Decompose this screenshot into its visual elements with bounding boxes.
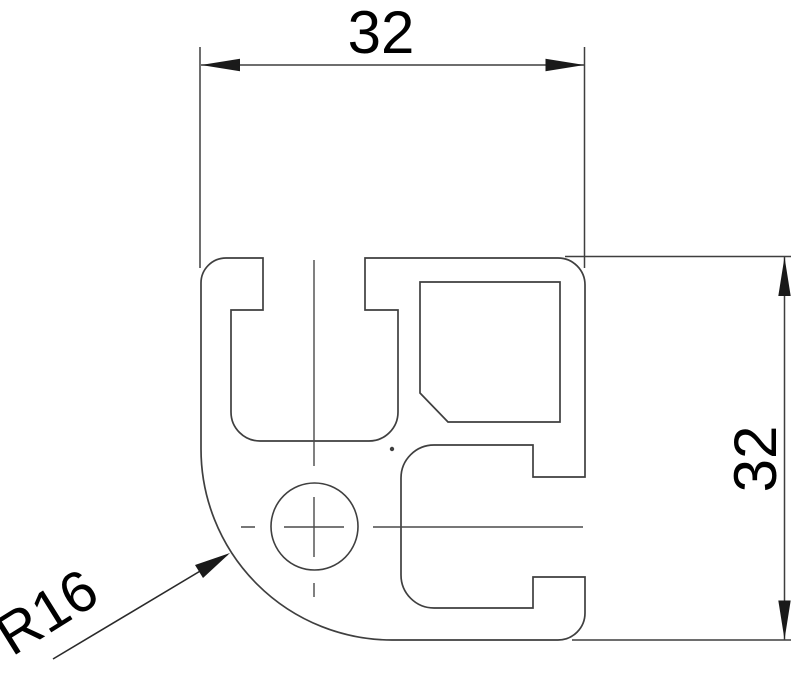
centerlines [241, 260, 583, 597]
width-dim-arrow-right-icon [546, 59, 585, 71]
height-dim-arrow-top-icon [778, 257, 790, 296]
radius-leader-arrow-icon [195, 553, 230, 578]
width-dim-label: 32 [348, 0, 415, 66]
height-dimension: 32 [565, 257, 791, 641]
width-dimension: 32 [200, 0, 585, 268]
radius-dim-label: R16 [0, 557, 109, 669]
technical-drawing: 32 32 R16 [0, 0, 800, 678]
drawing-canvas: 32 32 R16 [0, 0, 800, 678]
square-cavity [420, 282, 560, 422]
width-dim-arrow-left-icon [201, 59, 240, 71]
radius-center-dot [390, 447, 394, 451]
radius-callout: R16 [0, 553, 230, 668]
height-dim-arrow-bottom-icon [778, 601, 790, 640]
height-dim-label: 32 [722, 426, 789, 493]
